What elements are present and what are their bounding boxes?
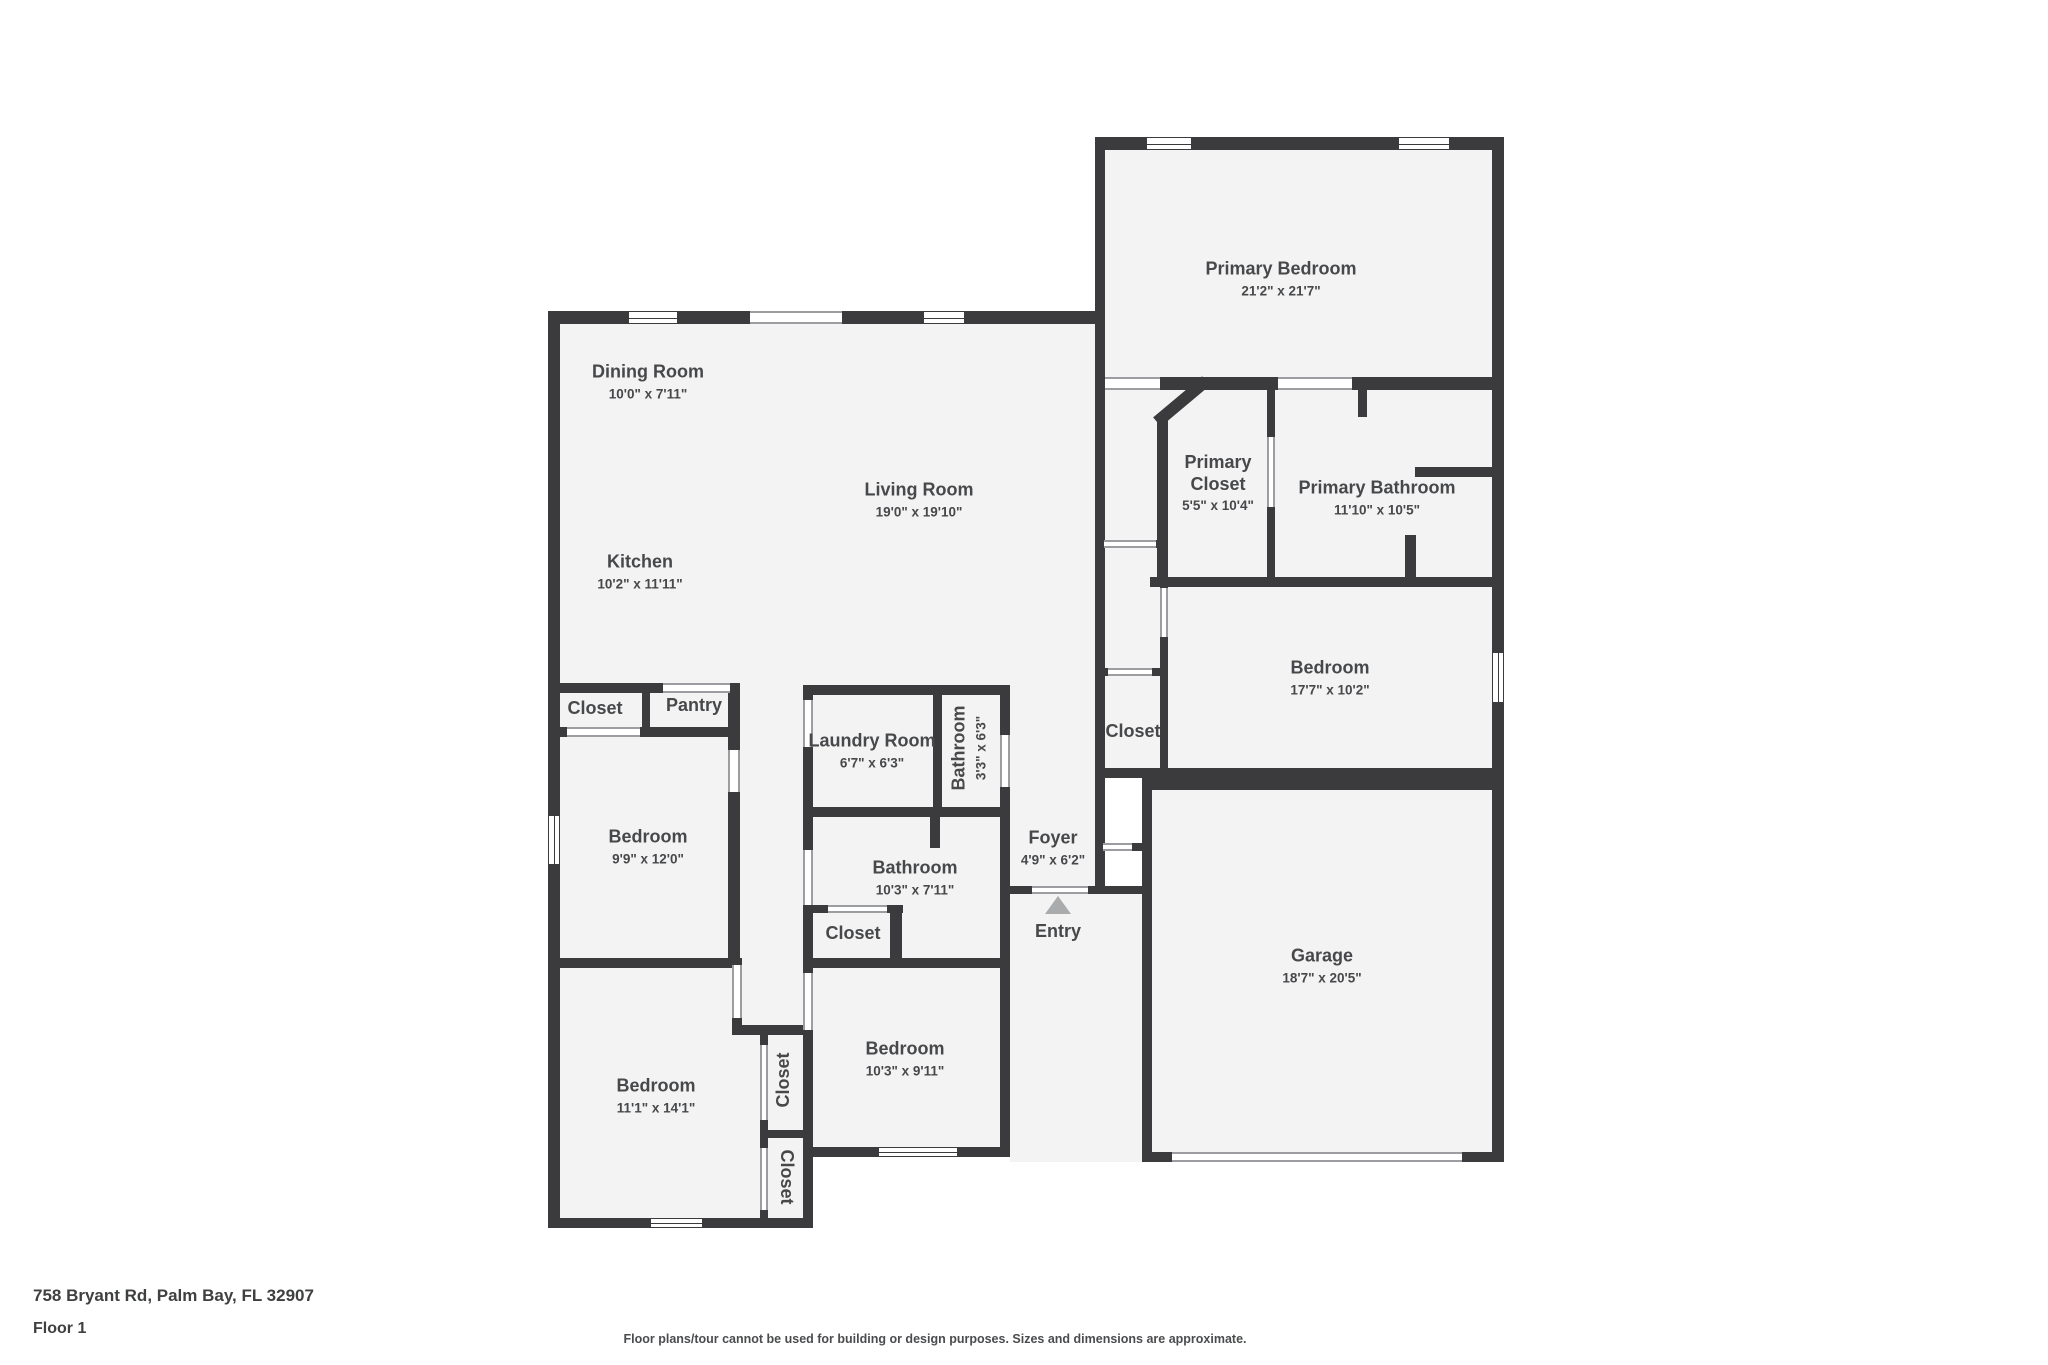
- door-opening: [750, 311, 842, 324]
- room-label-closet-11: Closet: [1105, 721, 1160, 743]
- wall: [1142, 778, 1152, 1162]
- window: [1146, 137, 1192, 150]
- door-opening: [567, 727, 640, 737]
- room-name: Foyer: [1021, 828, 1085, 850]
- wall: [1160, 548, 1168, 768]
- room-label-bathroom-14: Bathroom10'3" x 7'11": [873, 858, 958, 899]
- room-label-closet-15: Closet: [825, 923, 880, 945]
- door-opening: [1278, 377, 1352, 390]
- room-label-dining-room-1: Dining Room10'0" x 7'11": [592, 362, 704, 403]
- room-label-bathroom-10: Bathroom3'3" x 6'3": [949, 706, 990, 791]
- room-name: Garage: [1282, 946, 1361, 968]
- room-label-bedroom-6: Bedroom17'7" x 10'2": [1290, 658, 1369, 699]
- room-dimensions: 10'2" x 11'11": [597, 576, 682, 592]
- wall: [930, 817, 940, 848]
- room-name: Pantry: [666, 695, 722, 717]
- room-name: Bedroom: [1290, 658, 1369, 680]
- room-name: Living Room: [865, 480, 974, 502]
- room-name: Bedroom: [616, 1076, 695, 1098]
- door-opening: [1000, 735, 1010, 787]
- room-name: Dining Room: [592, 362, 704, 384]
- room-dimensions: 17'7" x 10'2": [1290, 682, 1369, 698]
- room-name: Kitchen: [597, 552, 682, 574]
- window-mullion: [1399, 144, 1449, 145]
- room-label-garage-16: Garage18'7" x 20'5": [1282, 946, 1361, 987]
- wall: [1405, 535, 1416, 577]
- window: [628, 311, 678, 324]
- floor-label: Floor 1: [33, 1320, 86, 1338]
- door-opening: [1103, 843, 1132, 851]
- room-name: Closet: [567, 698, 622, 720]
- disclaimer-text: Floor plans/tour cannot be used for buil…: [623, 1332, 1246, 1346]
- room-name: Closet: [773, 1052, 795, 1107]
- window: [548, 815, 560, 865]
- floor-plan: Primary Bedroom21'2" x 21'7"Dining Room1…: [0, 0, 2048, 1365]
- room-dimensions: 21'2" x 21'7": [1205, 283, 1356, 299]
- door-opening: [732, 965, 742, 1018]
- window: [1492, 652, 1504, 703]
- room-label-pantry-8: Pantry: [666, 695, 722, 717]
- room-label-primary-closet-4: Primary Closet5'5" x 10'4": [1170, 452, 1266, 514]
- room-name: Laundry Room: [808, 731, 935, 753]
- window: [878, 1147, 958, 1157]
- room-dimensions: 5'5" x 10'4": [1170, 498, 1266, 514]
- room-floor: [548, 683, 813, 1228]
- wall: [803, 685, 1010, 695]
- wall: [548, 311, 560, 1228]
- room-label-laundry-room-9: Laundry Room6'7" x 6'3": [808, 731, 935, 772]
- window: [1398, 137, 1450, 150]
- room-name: Closet: [1105, 721, 1160, 743]
- wall: [1358, 387, 1367, 417]
- door-opening: [1267, 437, 1275, 507]
- wall: [803, 807, 1000, 817]
- wall: [650, 727, 740, 737]
- wall: [890, 913, 902, 958]
- wall: [548, 958, 740, 968]
- room-dimensions: 9'9" x 12'0": [608, 851, 687, 867]
- room-name: Bathroom: [949, 706, 971, 791]
- room-name: Closet: [825, 923, 880, 945]
- window-mullion: [554, 816, 555, 864]
- window-mullion: [629, 318, 677, 319]
- door-opening: [828, 905, 887, 913]
- door-opening: [803, 973, 813, 1030]
- room-dimensions: 19'0" x 19'10": [865, 504, 974, 520]
- room-dimensions: 10'3" x 9'11": [865, 1063, 944, 1079]
- room-name: Closet: [775, 1149, 797, 1204]
- wall: [1095, 768, 1504, 778]
- door-opening: [1105, 377, 1160, 390]
- door-opening: [1160, 588, 1168, 637]
- room-label-closet-7: Closet: [567, 698, 622, 720]
- door-opening: [760, 1045, 768, 1120]
- entry-arrow-icon: [1045, 896, 1071, 914]
- room-name: Primary Bathroom: [1298, 478, 1455, 500]
- room-name: Primary Closet: [1170, 452, 1266, 495]
- room-dimensions: 4'9" x 6'2": [1021, 852, 1085, 868]
- wall: [1415, 467, 1504, 477]
- room-label-primary-bedroom-0: Primary Bedroom21'2" x 21'7": [1205, 259, 1356, 300]
- room-label-closet-19: Closet: [773, 1052, 795, 1107]
- wall: [803, 1157, 813, 1228]
- wall: [1492, 137, 1504, 1162]
- window-mullion: [1147, 144, 1191, 145]
- window: [923, 311, 965, 324]
- room-name: Bedroom: [865, 1039, 944, 1061]
- wall: [1142, 778, 1504, 790]
- door-opening: [1104, 540, 1156, 548]
- room-label-closet-20: Closet: [775, 1149, 797, 1204]
- wall: [1150, 577, 1504, 587]
- room-label-bedroom-18: Bedroom11'1" x 14'1": [616, 1076, 695, 1117]
- room-dimensions: 3'3" x 6'3": [973, 706, 989, 791]
- door-opening: [803, 850, 813, 905]
- room-dimensions: 11'1" x 14'1": [616, 1100, 695, 1116]
- door-opening: [760, 1148, 768, 1210]
- door-opening: [663, 683, 730, 693]
- room-name: Bedroom: [608, 827, 687, 849]
- address-text: 758 Bryant Rd, Palm Bay, FL 32907: [33, 1286, 314, 1306]
- wall: [728, 683, 740, 958]
- room-label-primary-bathroom-5: Primary Bathroom11'10" x 10'5": [1298, 478, 1455, 519]
- wall: [803, 958, 1010, 968]
- wall: [732, 1025, 813, 1035]
- door-opening: [1108, 668, 1152, 676]
- room-dimensions: 10'3" x 7'11": [873, 882, 958, 898]
- entry-label-text: Entry: [1035, 921, 1081, 943]
- room-name: Bathroom: [873, 858, 958, 880]
- window-mullion: [1498, 653, 1499, 702]
- door-opening: [728, 750, 740, 792]
- room-dimensions: 18'7" x 20'5": [1282, 970, 1361, 986]
- wall: [642, 683, 650, 737]
- room-dimensions: 11'10" x 10'5": [1298, 502, 1455, 518]
- window-mullion: [879, 1152, 957, 1153]
- window-mullion: [924, 318, 964, 319]
- room-dimensions: 10'0" x 7'11": [592, 386, 704, 402]
- window: [650, 1218, 703, 1228]
- room-label-bedroom-17: Bedroom10'3" x 9'11": [865, 1039, 944, 1080]
- door-opening: [1172, 1152, 1462, 1162]
- entry-label: Entry: [1035, 921, 1081, 943]
- room-name: Primary Bedroom: [1205, 259, 1356, 281]
- room-label-foyer-13: Foyer4'9" x 6'2": [1021, 828, 1085, 869]
- room-label-bedroom-12: Bedroom9'9" x 12'0": [608, 827, 687, 868]
- window-mullion: [651, 1223, 702, 1224]
- room-dimensions: 6'7" x 6'3": [808, 755, 935, 771]
- room-label-living-room-2: Living Room19'0" x 19'10": [865, 480, 974, 521]
- room-label-kitchen-3: Kitchen10'2" x 11'11": [597, 552, 682, 593]
- wall: [1095, 137, 1105, 890]
- door-opening: [1032, 886, 1088, 894]
